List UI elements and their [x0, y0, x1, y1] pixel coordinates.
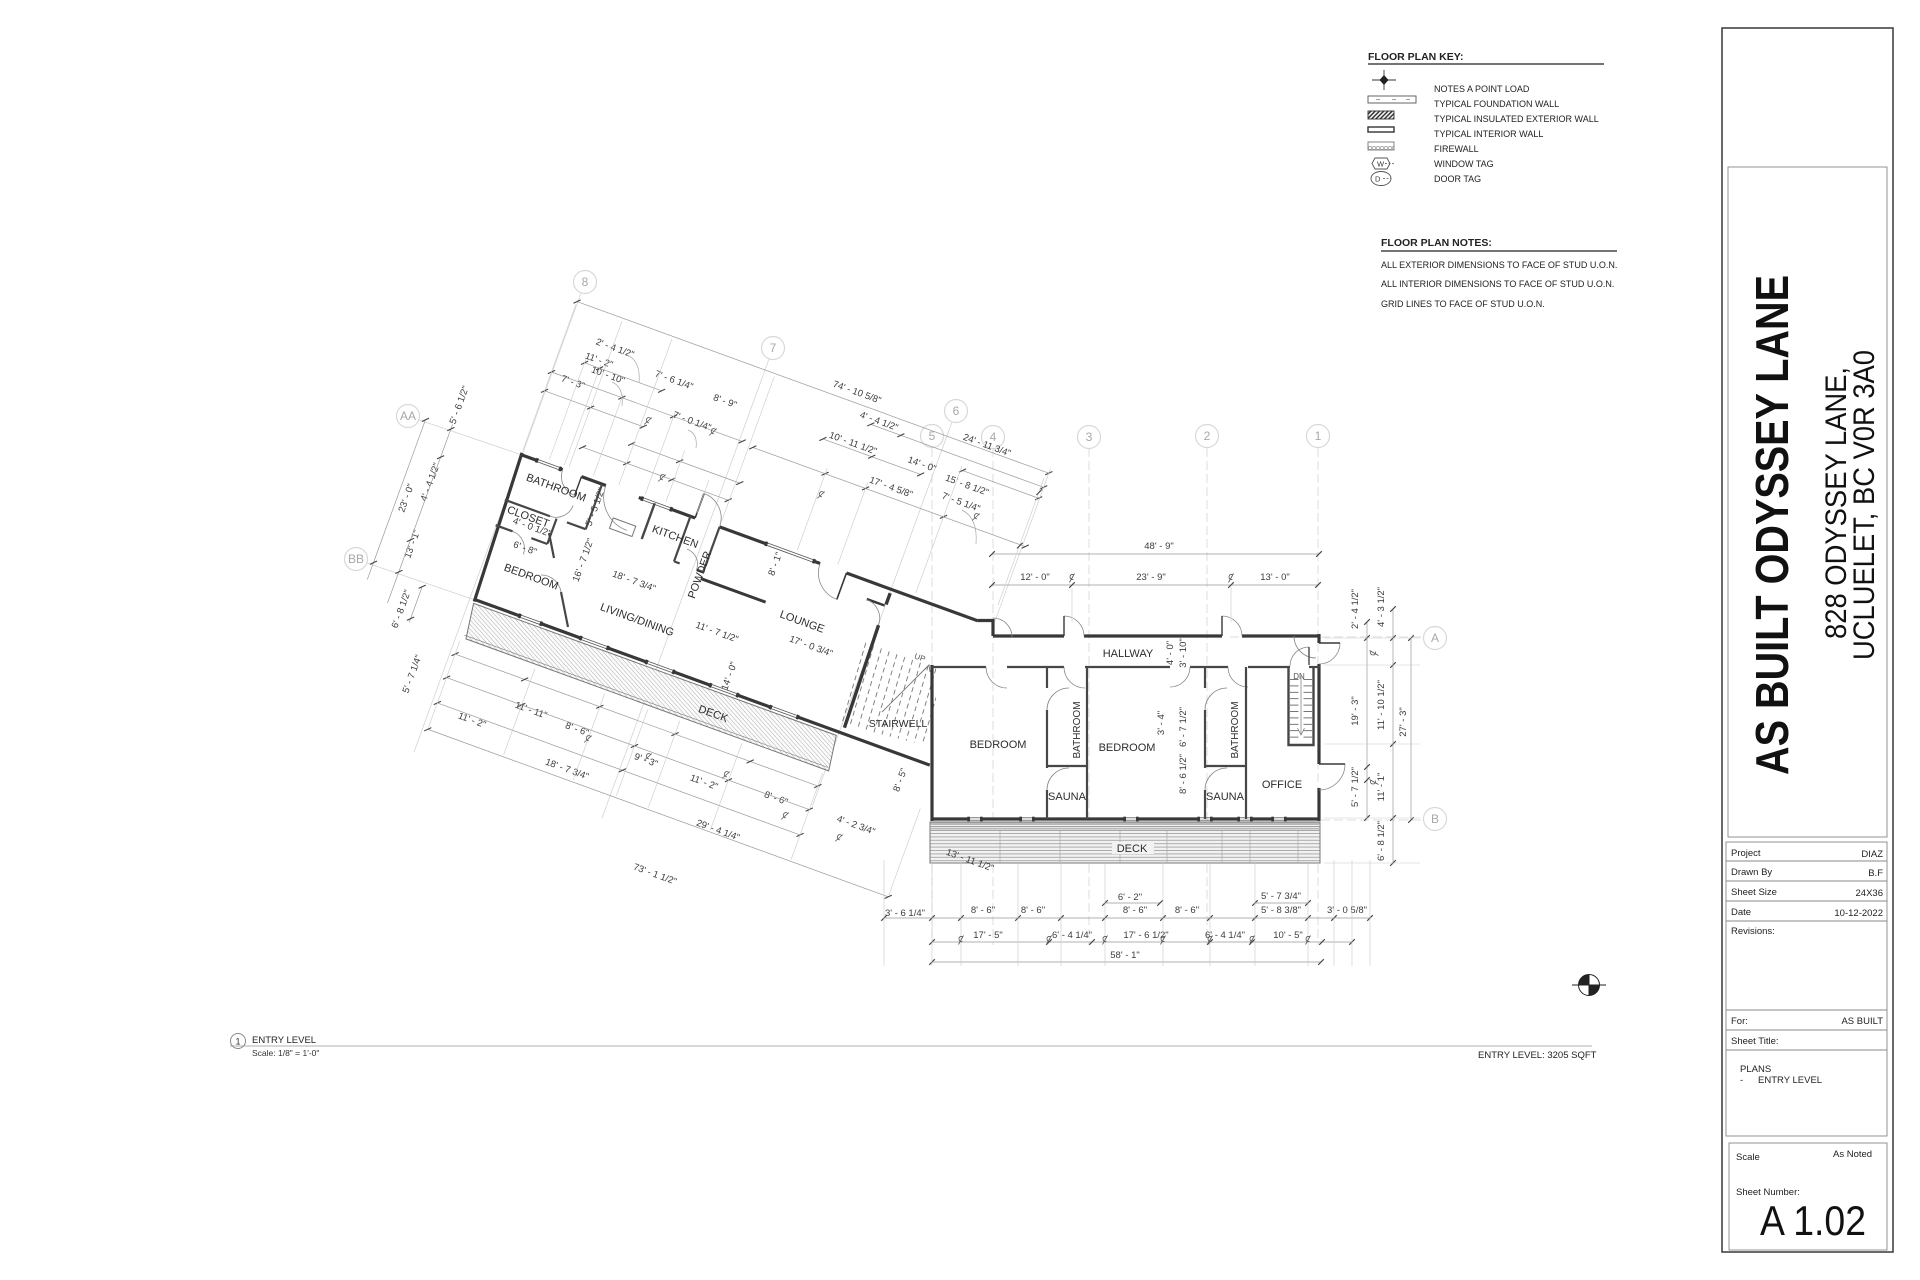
- svg-text:TYPICAL INSULATED EXTERIOR WAL: TYPICAL INSULATED EXTERIOR WALL: [1434, 114, 1599, 124]
- svg-text:TYPICAL FOUNDATION WALL: TYPICAL FOUNDATION WALL: [1434, 99, 1559, 109]
- svg-text:2' - 4 1/2": 2' - 4 1/2": [1350, 589, 1361, 629]
- svg-text:10' - 5": 10' - 5": [1273, 930, 1302, 941]
- svg-text:6' - 4 1/4": 6' - 4 1/4": [1052, 930, 1092, 941]
- svg-text:Project: Project: [1731, 848, 1761, 859]
- svg-text:Sheet Title:: Sheet Title:: [1731, 1036, 1779, 1047]
- svg-text:AS BUILT ODYSSEY LANE: AS BUILT ODYSSEY LANE: [1746, 275, 1798, 775]
- svg-text:6' - 2": 6' - 2": [1118, 892, 1142, 903]
- svg-text:DIAZ: DIAZ: [1861, 849, 1883, 860]
- svg-text:2: 2: [1204, 429, 1211, 443]
- svg-text:48' - 9": 48' - 9": [1144, 541, 1173, 552]
- svg-text:17' - 6 1/2": 17' - 6 1/2": [1123, 930, 1168, 941]
- svg-text:SAUNA: SAUNA: [1206, 791, 1245, 803]
- svg-text:17' - 5": 17' - 5": [973, 930, 1002, 941]
- svg-text:6: 6: [953, 404, 960, 418]
- svg-text:As Noted: As Noted: [1833, 1149, 1872, 1160]
- svg-text:10-12-2022: 10-12-2022: [1834, 908, 1883, 919]
- svg-text:5' - 7 1/2": 5' - 7 1/2": [1350, 767, 1361, 807]
- svg-text:WINDOW TAG: WINDOW TAG: [1434, 159, 1494, 169]
- svg-text:8' - 6": 8' - 6": [1123, 905, 1147, 916]
- svg-text:Date: Date: [1731, 907, 1751, 918]
- svg-text:GRID LINES TO FACE OF STUD U.O: GRID LINES TO FACE OF STUD U.O.N.: [1381, 299, 1545, 309]
- svg-text:4' - 3 1/2": 4' - 3 1/2": [1376, 587, 1387, 627]
- svg-text:6' - 8 1/2": 6' - 8 1/2": [1376, 821, 1387, 861]
- svg-text:6' - 4 1/4": 6' - 4 1/4": [1205, 930, 1245, 941]
- svg-text:12' - 0": 12' - 0": [1020, 572, 1049, 583]
- svg-text:ENTRY LEVEL: ENTRY LEVEL: [1758, 1075, 1822, 1086]
- svg-text:3' - 10": 3' - 10": [1178, 638, 1189, 667]
- svg-text:5' - 7 3/4": 5' - 7 3/4": [1261, 891, 1301, 902]
- svg-text:AA: AA: [400, 409, 416, 423]
- svg-text:B: B: [1431, 812, 1439, 826]
- svg-text:58' - 1": 58' - 1": [1110, 950, 1139, 961]
- svg-text:STAIRWELL: STAIRWELL: [869, 718, 928, 730]
- svg-text:PLANS: PLANS: [1740, 1064, 1771, 1075]
- svg-text:ALL INTERIOR DIMENSIONS TO FAC: ALL INTERIOR DIMENSIONS TO FACE OF STUD …: [1381, 279, 1614, 289]
- svg-text:23' - 9": 23' - 9": [1136, 572, 1165, 583]
- svg-text:SAUNA: SAUNA: [1048, 791, 1087, 803]
- svg-text:8' - 6 1/2": 8' - 6 1/2": [1178, 754, 1189, 794]
- svg-text:AS BUILT: AS BUILT: [1841, 1016, 1883, 1027]
- svg-text:1: 1: [235, 1037, 240, 1047]
- svg-text:3' - 0 5/8": 3' - 0 5/8": [1327, 905, 1367, 916]
- svg-text:DECK: DECK: [1117, 843, 1148, 855]
- svg-text:DN: DN: [1293, 672, 1305, 681]
- svg-text:Revisions:: Revisions:: [1731, 926, 1775, 937]
- svg-text:D: D: [1375, 175, 1381, 184]
- svg-text:Scale: 1/8" = 1'-0": Scale: 1/8" = 1'-0": [252, 1048, 319, 1058]
- svg-text:FLOOR PLAN NOTES:: FLOOR PLAN NOTES:: [1381, 237, 1492, 249]
- svg-text:HALLWAY: HALLWAY: [1103, 648, 1154, 660]
- svg-text:UCLUELET, BC V0R 3A0: UCLUELET, BC V0R 3A0: [1848, 350, 1881, 660]
- svg-text:8' - 6": 8' - 6": [971, 905, 995, 916]
- svg-text:BATHROOM: BATHROOM: [1072, 701, 1083, 758]
- svg-text:1: 1: [1315, 429, 1322, 443]
- svg-text:8' - 6": 8' - 6": [1175, 905, 1199, 916]
- svg-text:5' - 8 3/8": 5' - 8 3/8": [1261, 905, 1301, 916]
- svg-text:Sheet Size: Sheet Size: [1731, 887, 1777, 898]
- svg-text:6' - 7 1/2": 6' - 7 1/2": [1178, 707, 1189, 747]
- svg-text:TYPICAL INTERIOR WALL: TYPICAL INTERIOR WALL: [1434, 129, 1543, 139]
- svg-text:-: -: [1740, 1075, 1743, 1086]
- svg-text:3: 3: [1086, 430, 1093, 444]
- svg-text:24X36: 24X36: [1856, 888, 1883, 899]
- svg-text:For:: For:: [1731, 1016, 1748, 1027]
- svg-text:Scale: Scale: [1736, 1152, 1760, 1163]
- svg-text:FIREWALL: FIREWALL: [1434, 144, 1479, 154]
- svg-text:BEDROOM: BEDROOM: [1099, 742, 1156, 754]
- svg-text:ENTRY LEVEL: ENTRY LEVEL: [252, 1035, 316, 1046]
- svg-text:A: A: [1431, 631, 1439, 645]
- svg-text:4' - 0": 4' - 0": [1165, 641, 1176, 665]
- svg-text:FLOOR PLAN KEY:: FLOOR PLAN KEY:: [1368, 51, 1463, 63]
- svg-text:3' - 6 1/4": 3' - 6 1/4": [885, 908, 925, 919]
- svg-text:11' - 1": 11' - 1": [1376, 773, 1387, 802]
- svg-text:11' - 10 1/2": 11' - 10 1/2": [1376, 680, 1387, 730]
- svg-text:ALL EXTERIOR DIMENSIONS TO FAC: ALL EXTERIOR DIMENSIONS TO FACE OF STUD …: [1381, 260, 1617, 270]
- svg-text:OFFICE: OFFICE: [1262, 779, 1302, 791]
- svg-text:3' - 4": 3' - 4": [1156, 711, 1167, 735]
- svg-text:27' - 3": 27' - 3": [1398, 707, 1409, 736]
- svg-text:7: 7: [770, 341, 777, 355]
- svg-text:Drawn By: Drawn By: [1731, 867, 1772, 878]
- svg-text:8: 8: [582, 275, 589, 289]
- svg-text:W: W: [1377, 160, 1385, 169]
- svg-text:DOOR TAG: DOOR TAG: [1434, 174, 1481, 184]
- svg-text:BATHROOM: BATHROOM: [1230, 701, 1241, 758]
- svg-text:19' - 3": 19' - 3": [1350, 696, 1361, 725]
- svg-text:BEDROOM: BEDROOM: [970, 739, 1027, 751]
- svg-text:B.F: B.F: [1868, 868, 1883, 879]
- svg-text:A 1.02: A 1.02: [1760, 1197, 1866, 1244]
- svg-text:8' - 6": 8' - 6": [1021, 905, 1045, 916]
- svg-text:13' - 0": 13' - 0": [1260, 572, 1289, 583]
- svg-text:BB: BB: [348, 552, 364, 566]
- svg-text:NOTES A POINT LOAD: NOTES A POINT LOAD: [1434, 84, 1530, 94]
- svg-text:ENTRY LEVEL: 3205 SQFT: ENTRY LEVEL: 3205 SQFT: [1478, 1050, 1597, 1061]
